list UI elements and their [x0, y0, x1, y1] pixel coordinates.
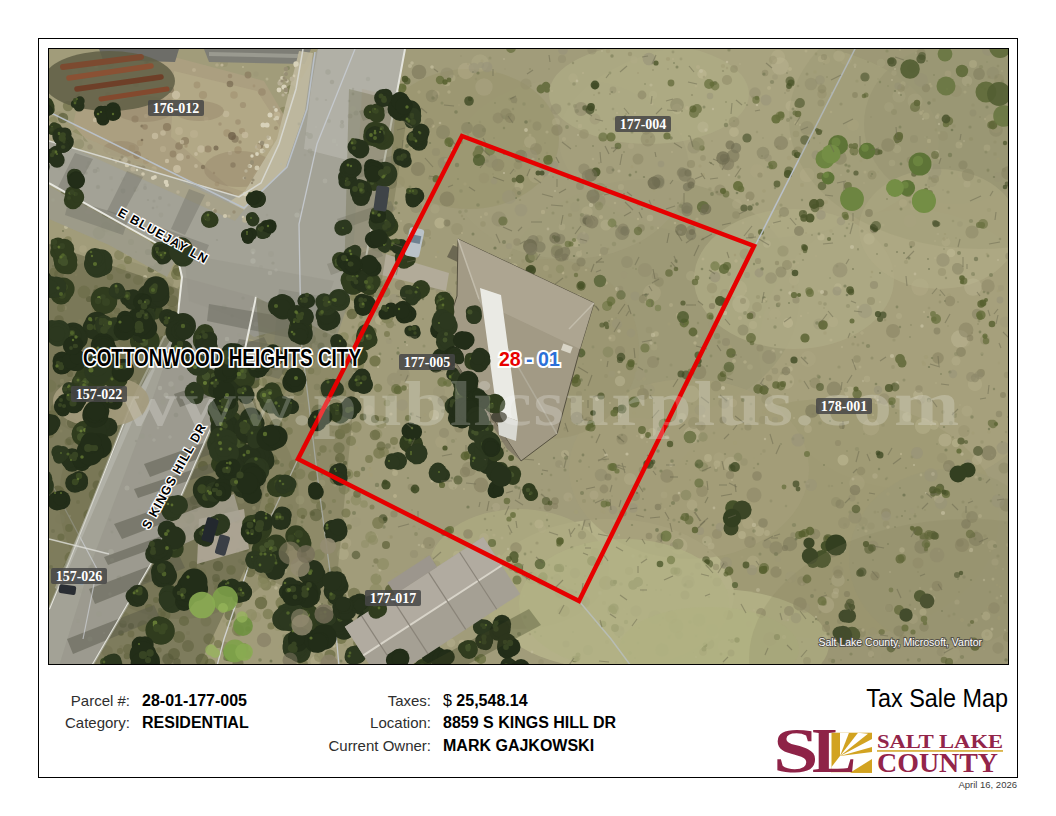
svg-text:L: L	[812, 727, 856, 775]
svg-text:28 - 01: 28 - 01	[499, 348, 560, 370]
svg-text:177-004: 177-004	[620, 117, 667, 132]
svg-text:157-026: 157-026	[56, 569, 103, 584]
svg-text:157-022: 157-022	[76, 387, 123, 402]
svg-text:176-012: 176-012	[153, 101, 200, 116]
svg-text:COUNTY: COUNTY	[877, 747, 998, 775]
svg-text:Salt Lake County, Microsoft, V: Salt Lake County, Microsoft, Vantor	[818, 636, 982, 648]
svg-text:178-001: 178-001	[821, 399, 868, 414]
svg-text:177-005: 177-005	[404, 355, 451, 370]
svg-text:177-017: 177-017	[370, 591, 417, 606]
svg-text:COTTONWOOD HEIGHTS CITY: COTTONWOOD HEIGHTS CITY	[83, 345, 361, 371]
